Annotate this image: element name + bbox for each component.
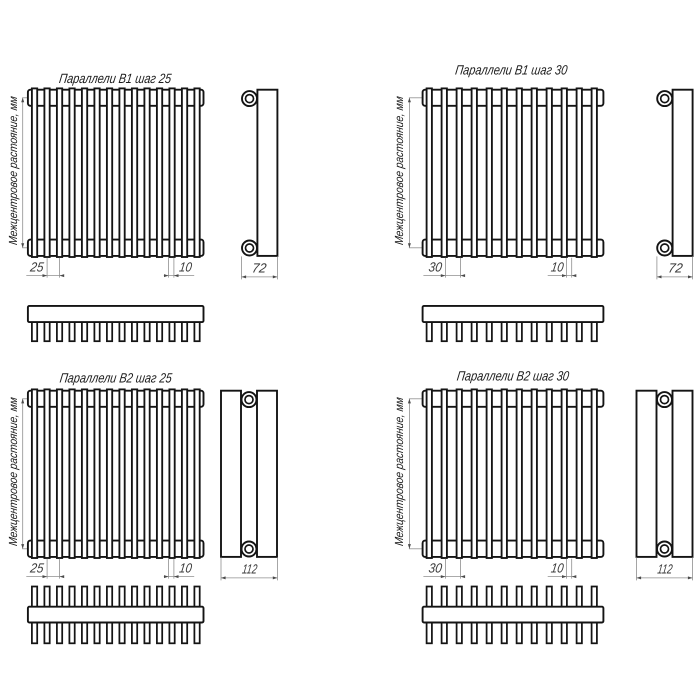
svg-text:112: 112 xyxy=(656,563,673,577)
svg-text:10: 10 xyxy=(178,260,193,275)
svg-text:10: 10 xyxy=(178,561,193,576)
svg-text:72: 72 xyxy=(251,260,268,275)
svg-text:30: 30 xyxy=(428,561,443,576)
svg-text:Межцентровое растояние, мм: Межцентровое растояние, мм xyxy=(6,396,20,546)
svg-text:112: 112 xyxy=(241,563,258,577)
svg-text:Параллели В1 шаг 25: Параллели В1 шаг 25 xyxy=(58,71,172,86)
svg-text:Параллели В2 шаг 30: Параллели В2 шаг 30 xyxy=(456,368,570,383)
svg-text:Межцентровое растояние, мм: Межцентровое растояние, мм xyxy=(6,95,20,245)
svg-text:Межцентровое растояние, мм: Межцентровое растояние, мм xyxy=(392,396,406,546)
svg-text:10: 10 xyxy=(550,561,565,576)
svg-text:30: 30 xyxy=(428,260,443,275)
svg-text:Параллели В2 шаг 25: Параллели В2 шаг 25 xyxy=(59,371,173,386)
svg-text:Межцентровое растояние, мм: Межцентровое растояние, мм xyxy=(392,95,406,245)
svg-text:72: 72 xyxy=(667,260,684,275)
svg-text:10: 10 xyxy=(550,260,565,275)
svg-text:Параллели В1 шаг 30: Параллели В1 шаг 30 xyxy=(454,62,568,77)
